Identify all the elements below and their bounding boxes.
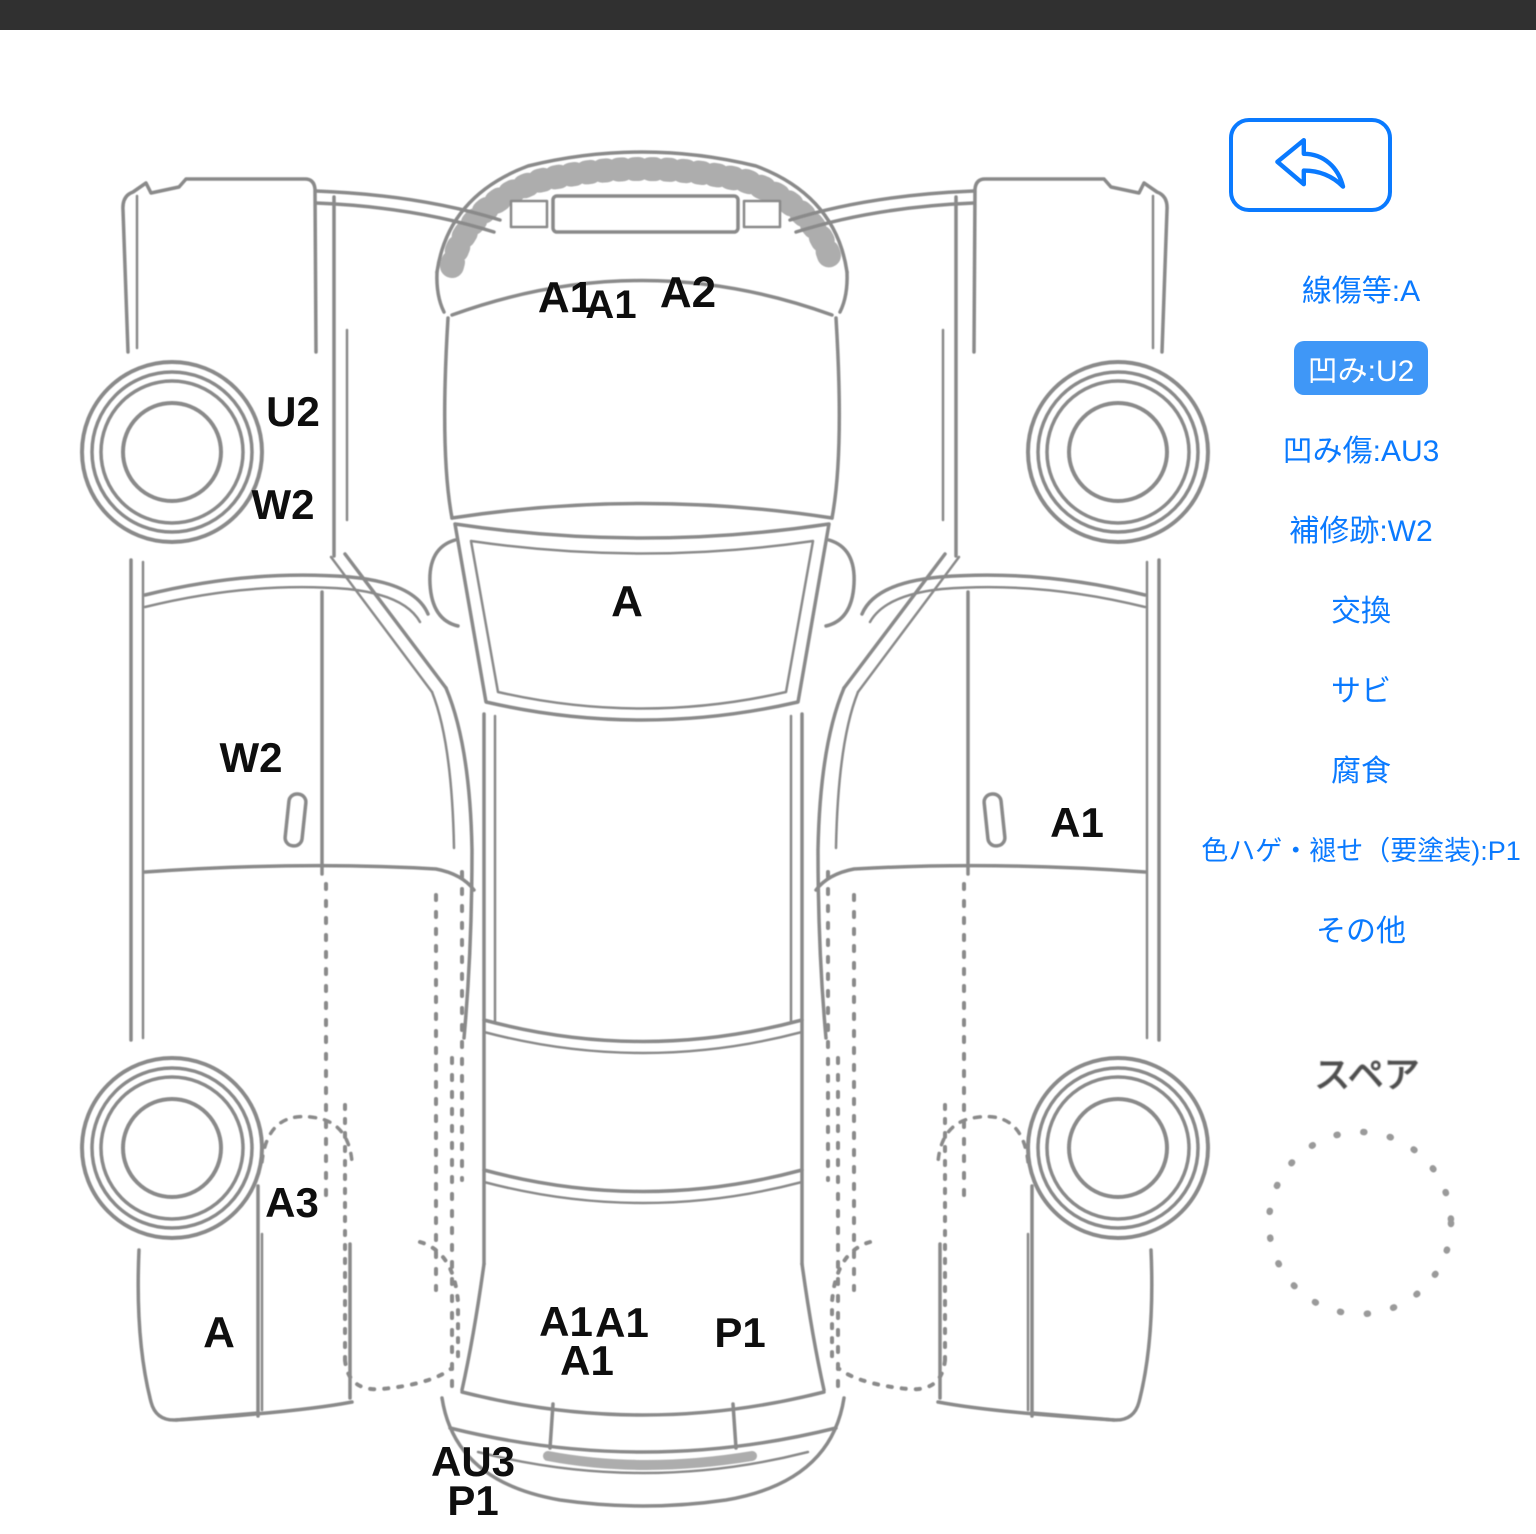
side-view-left: [82, 179, 500, 1420]
spare-label: スペア: [1314, 1046, 1419, 1098]
legend-item-rust[interactable]: サビ: [1186, 648, 1536, 728]
legend-item-other[interactable]: その他: [1186, 888, 1536, 968]
spare-tire-circle: [1269, 1132, 1451, 1314]
legend-item-dent-scratch[interactable]: 凹み傷:AU3: [1186, 408, 1536, 488]
damage-label[interactable]: A2: [660, 271, 716, 315]
damage-label[interactable]: U2: [266, 391, 320, 433]
legend-item-label: サビ: [1331, 666, 1391, 710]
legend-item-label: 交換: [1331, 586, 1391, 630]
damage-label[interactable]: A3: [265, 1182, 319, 1224]
legend-item-label: 線傷等:A: [1302, 266, 1420, 310]
damage-label[interactable]: P1: [714, 1312, 765, 1354]
damage-type-legend: 線傷等:A 凹み:U2 凹み傷:AU3 補修跡:W2 交換 サビ 腐食 色ハゲ・…: [1186, 248, 1536, 968]
legend-item-label: 補修跡:W2: [1289, 506, 1432, 550]
legend-item-label: 色ハゲ・褪せ（要塗装):P1: [1201, 829, 1521, 868]
status-bar: [0, 0, 1536, 30]
legend-item-label: 凹み傷:AU3: [1283, 426, 1440, 470]
legend-item-paint-fade[interactable]: 色ハゲ・褪せ（要塗装):P1: [1186, 808, 1536, 888]
legend-item-label: その他: [1316, 906, 1406, 950]
back-button[interactable]: [1229, 118, 1392, 212]
damage-label[interactable]: W2: [252, 484, 315, 526]
legend-item-repair-mark[interactable]: 補修跡:W2: [1186, 488, 1536, 568]
legend-item-label-active: 凹み:U2: [1294, 341, 1429, 395]
damage-label[interactable]: A: [203, 1311, 235, 1355]
legend-item-dent[interactable]: 凹み:U2: [1186, 328, 1536, 408]
damage-label[interactable]: P1: [447, 1480, 498, 1522]
damage-label[interactable]: A1: [585, 285, 636, 325]
legend-item-corrosion[interactable]: 腐食: [1186, 728, 1536, 808]
side-view-right: [790, 179, 1208, 1420]
damage-label[interactable]: W2: [220, 737, 283, 779]
damage-label[interactable]: A1: [560, 1340, 614, 1382]
legend-item-replacement[interactable]: 交換: [1186, 568, 1536, 648]
legend-item-label: 腐食: [1331, 746, 1391, 790]
damage-label[interactable]: A: [611, 580, 643, 624]
damage-label[interactable]: A1: [1050, 802, 1104, 844]
inspection-canvas: A1 A1 A2 U2 W2 A W2 A1 A3 A A1 A1 A1 P1 …: [0, 0, 1536, 1534]
legend-item-line-scratch[interactable]: 線傷等:A: [1186, 248, 1536, 328]
reply-arrow-icon: [1267, 133, 1355, 197]
